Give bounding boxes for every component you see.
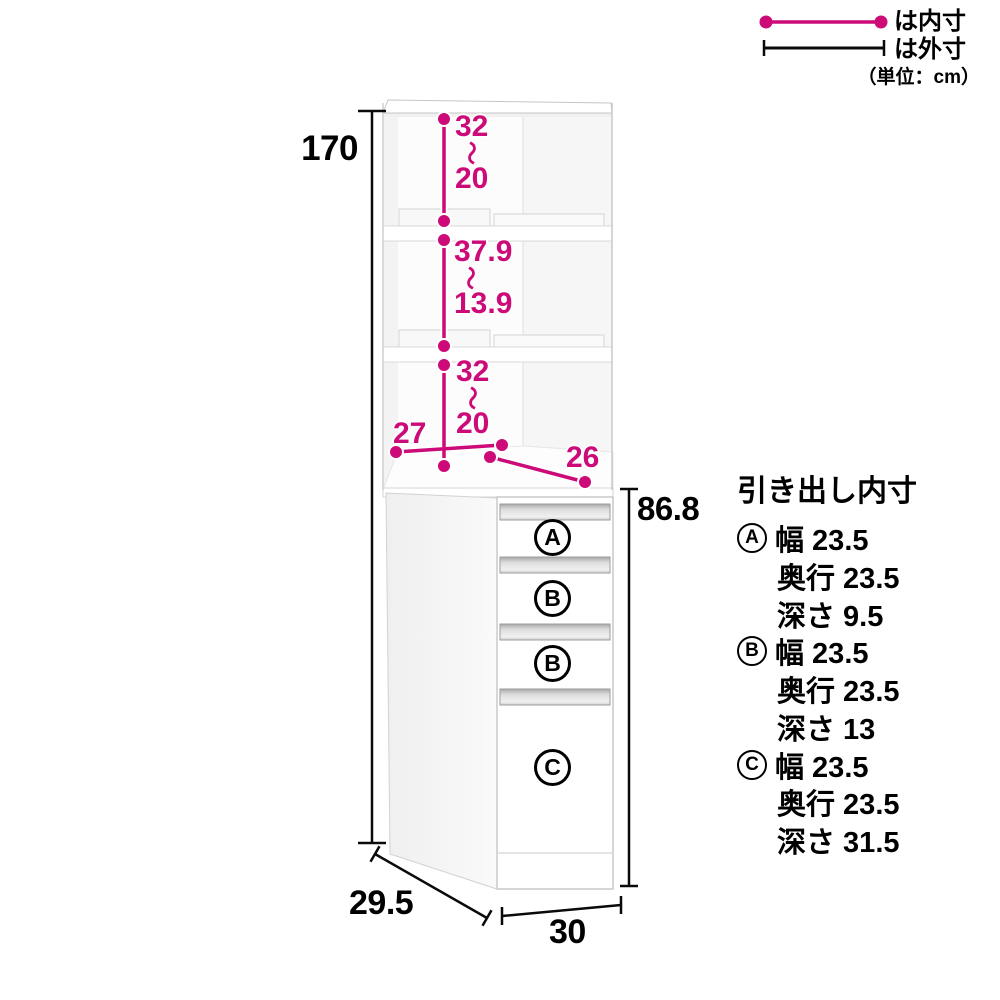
shelf-range-3-max: 32 <box>456 357 489 387</box>
spec-a-width: 幅 23.5 <box>775 517 869 559</box>
shelf-range-1-max: 32 <box>455 112 488 142</box>
dim-depth: 29.5 <box>349 886 413 920</box>
dim-width: 30 <box>549 915 586 949</box>
dim-lower-unit-height: 86.8 <box>637 492 699 525</box>
shelf-range-2-min: 13.9 <box>454 289 512 319</box>
diagram-canvas: は内寸 は外寸 （単位：cm） 170 86.8 29.5 30 32 〜 20… <box>0 0 1000 1000</box>
spec-b-badge: B <box>737 636 767 666</box>
spec-a-badge: A <box>737 523 767 553</box>
shelf-range-2-tilde: 〜 <box>462 266 484 290</box>
spec-c-height: 深さ 31.5 <box>777 819 900 861</box>
dim-open-depth: 27 <box>393 419 426 449</box>
drawer-badge-b1: B <box>534 580 571 617</box>
drawer-spec-list: 引き出し内寸 A 幅 23.5 奥行 23.5 深さ 9.5 B 幅 23.5 … <box>737 474 917 859</box>
dim-open-width: 26 <box>566 443 599 473</box>
shelf-range-3-min: 20 <box>456 409 489 439</box>
shelf-range-3: 32 〜 20 <box>456 357 489 439</box>
shelf-range-1-tilde: 〜 <box>463 141 485 165</box>
spec-a-depth: 奥行 23.5 <box>777 555 900 597</box>
spec-c-depth: 奥行 23.5 <box>777 781 900 823</box>
dim-total-height: 170 <box>296 131 358 166</box>
drawer-badge-b2: B <box>534 645 571 682</box>
spec-c-width-row: C 幅 23.5 <box>737 746 917 784</box>
spec-c-width: 幅 23.5 <box>775 744 869 786</box>
lower-drawer-unit <box>386 493 613 889</box>
drawer-badge-a: A <box>534 519 571 556</box>
legend-unit-note: （単位：cm） <box>850 64 980 92</box>
spec-b-height: 深さ 13 <box>777 706 875 748</box>
spec-b-depth: 奥行 23.5 <box>777 668 900 710</box>
spec-a-width-row: A 幅 23.5 <box>737 519 917 557</box>
spec-b-height-row: 深さ 13 <box>737 708 917 746</box>
spec-c-depth-row: 奥行 23.5 <box>737 784 917 822</box>
shelf-range-1: 32 〜 20 <box>455 112 488 194</box>
spec-b-width: 幅 23.5 <box>775 630 869 672</box>
shelf-range-3-tilde: 〜 <box>464 386 486 410</box>
spec-c-height-row: 深さ 31.5 <box>737 821 917 859</box>
spec-a-height: 深さ 9.5 <box>777 593 883 635</box>
spec-a-depth-row: 奥行 23.5 <box>737 557 917 595</box>
spec-a-height-row: 深さ 9.5 <box>737 595 917 633</box>
drawer-badge-c: C <box>534 749 571 786</box>
spec-title: 引き出し内寸 <box>737 474 917 510</box>
legend-inner-label: は内寸 <box>894 8 966 36</box>
shelf-range-2: 37.9 〜 13.9 <box>454 237 512 319</box>
shelf-range-2-max: 37.9 <box>454 237 512 267</box>
shelf-range-1-min: 20 <box>455 164 488 194</box>
legend-outer-label: は外寸 <box>894 36 966 64</box>
spec-b-width-row: B 幅 23.5 <box>737 632 917 670</box>
spec-b-depth-row: 奥行 23.5 <box>737 670 917 708</box>
spec-c-badge: C <box>737 750 767 780</box>
